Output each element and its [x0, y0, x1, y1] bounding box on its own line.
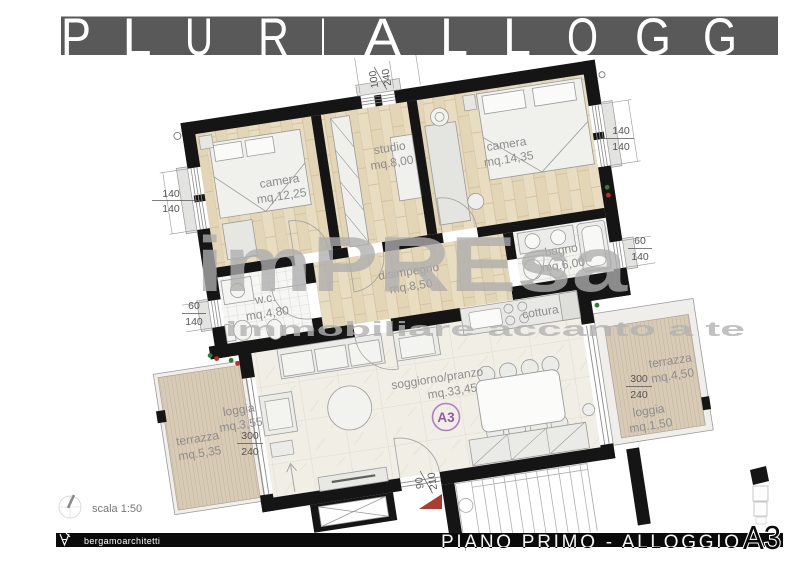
svg-text:scala 1:50: scala 1:50	[92, 503, 142, 515]
svg-text:300: 300	[630, 373, 648, 385]
svg-text:bergamoarchitetti: bergamoarchitetti	[84, 536, 160, 546]
svg-text:140: 140	[162, 203, 180, 215]
svg-text:300: 300	[241, 430, 259, 442]
svg-text:imPREsa: imPREsa	[196, 220, 628, 308]
svg-text:140: 140	[162, 188, 180, 200]
svg-text:L: L	[123, 8, 152, 67]
svg-text:L: L	[503, 8, 531, 67]
svg-text:140: 140	[631, 251, 649, 263]
svg-text:A3: A3	[437, 410, 455, 425]
svg-text:240: 240	[241, 446, 259, 458]
svg-text:L: L	[440, 8, 468, 67]
svg-text:60: 60	[634, 235, 646, 247]
svg-text:PIANO PRIMO - ALLOGGIO: PIANO PRIMO - ALLOGGIO	[441, 532, 739, 553]
svg-text:140: 140	[612, 141, 630, 153]
svg-text:A3: A3	[743, 519, 781, 556]
svg-text:P: P	[61, 8, 91, 67]
svg-text:G: G	[703, 8, 737, 67]
svg-text:140: 140	[612, 125, 630, 137]
svg-text:140: 140	[185, 316, 203, 328]
svg-text:O: O	[567, 8, 598, 67]
svg-text:A: A	[364, 8, 402, 67]
svg-text:90: 90	[413, 476, 427, 490]
svg-text:I: I	[320, 8, 326, 67]
svg-text:G: G	[635, 8, 671, 67]
svg-text:240: 240	[630, 389, 648, 401]
svg-text:60: 60	[188, 300, 200, 312]
svg-text:U: U	[185, 8, 213, 67]
svg-text:immobiliare accanto a te: immobiliare accanto a te	[225, 319, 745, 341]
svg-text:R: R	[258, 8, 289, 67]
